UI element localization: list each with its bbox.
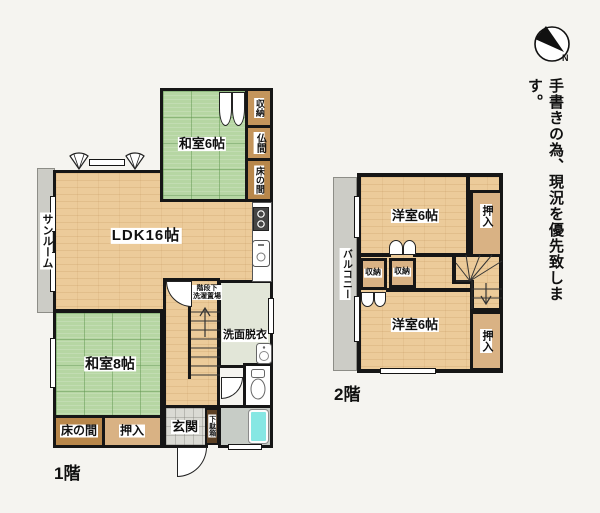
window-strip: [354, 296, 360, 342]
wall: [357, 253, 391, 257]
window-strip: [228, 444, 262, 450]
compass-north-label: N: [562, 53, 569, 63]
window-fan-icon: [67, 150, 91, 170]
label-under-stairs: 階段下 洗濯置場: [192, 285, 222, 300]
label-yoshitsu-lower: 洋室6帖: [391, 318, 439, 332]
label-getabako: 下駄箱: [208, 415, 216, 438]
stairs-1f: [191, 303, 220, 382]
label-under-stairs-line1: 階段下: [197, 285, 218, 292]
label-shunou-2f-left: 収納: [364, 269, 382, 278]
closet-door-icon: [361, 292, 386, 307]
handwritten-notice: 手書きの為、現況を優先致します。: [538, 78, 566, 328]
label-under-stairs-line2: 洗濯置場: [193, 293, 221, 300]
label-oshiire-2f-lower: 押入: [480, 329, 492, 353]
label-shunou-1f: 収納: [254, 98, 264, 118]
label-tokonoma-lower: 床の間: [60, 425, 98, 438]
label-oshiire-2f-upper: 押入: [480, 204, 492, 228]
label-senmen: 洗面脱衣: [222, 330, 268, 342]
label-genkan: 玄関: [171, 420, 199, 434]
window-fan-icon: [123, 150, 147, 170]
stairs-2f: [456, 255, 502, 309]
window-strip: [50, 338, 56, 388]
window-strip: [89, 159, 125, 166]
closet-door-icon: [389, 240, 416, 255]
bathtub-icon: [249, 410, 268, 443]
window-strip: [380, 368, 436, 374]
window-strip: [354, 196, 360, 238]
label-ldk: LDK16帖: [111, 228, 182, 244]
label-floor1: 1階: [53, 465, 81, 483]
kitchen-sink-icon: [252, 240, 270, 267]
label-shunou-2f-right: 収納: [393, 268, 411, 277]
compass-icon: N: [528, 20, 576, 68]
label-sunroom: サンルーム: [40, 213, 52, 270]
washbasin-icon: [256, 343, 272, 364]
window-strip: [268, 298, 274, 334]
floorplan-page: { "notice": "手書きの為、現況を優先致します。", "compass…: [0, 0, 600, 513]
label-washitsu8: 和室8帖: [84, 356, 136, 371]
label-washitsu6: 和室6帖: [178, 137, 226, 151]
label-tokonoma-upper: 床の間: [254, 166, 264, 195]
label-yoshitsu-upper: 洋室6帖: [391, 209, 439, 223]
label-oshiire-1f: 押入: [119, 425, 145, 438]
door-arc: [221, 377, 243, 399]
entrance-door-arc: [177, 447, 207, 477]
stove-icon: [253, 207, 269, 231]
label-balcony: バルコニー: [340, 248, 351, 300]
toilet-icon: [249, 369, 267, 401]
label-floor2: 2階: [333, 386, 361, 404]
label-butsuma: 仏間: [254, 132, 265, 154]
closet-door-icon: [219, 92, 245, 126]
